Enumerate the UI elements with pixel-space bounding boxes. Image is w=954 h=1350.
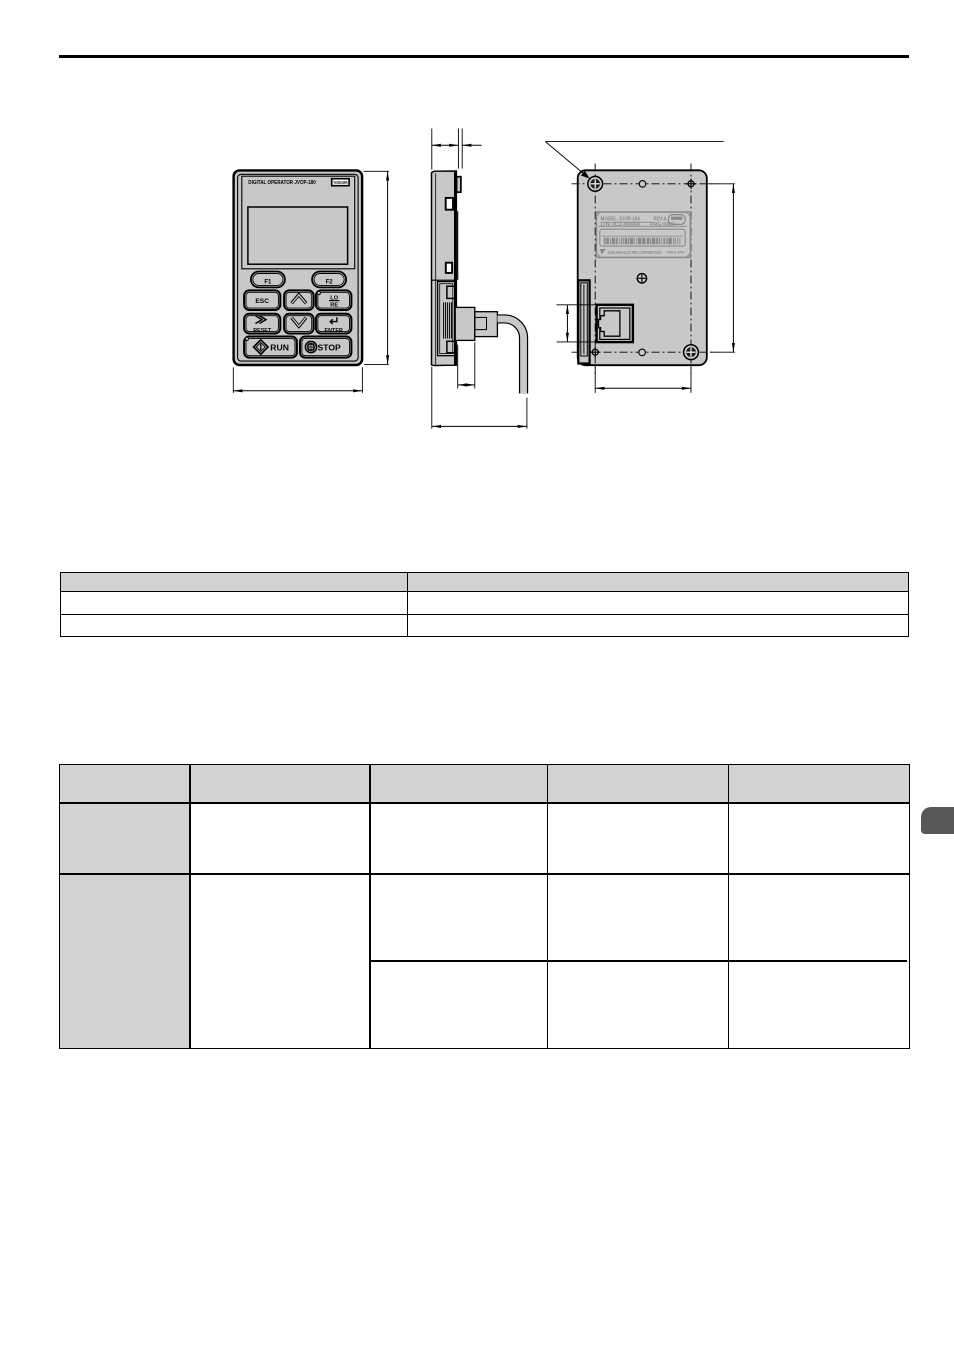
svg-text:DIGITAL OPERATOR JVOP-180: DIGITAL OPERATOR JVOP-180 bbox=[248, 180, 315, 186]
svg-text:ESC: ESC bbox=[255, 298, 269, 305]
svg-text:L/N JC2-00004: L/N JC2-00004 bbox=[601, 222, 641, 228]
svg-text:YASKAWA ELECTRIC CORPORATION: YASKAWA ELECTRIC CORPORATION bbox=[608, 250, 662, 255]
svg-text:RE: RE bbox=[330, 302, 338, 308]
svg-text:RESET: RESET bbox=[253, 328, 272, 334]
svg-text:F1: F1 bbox=[264, 280, 272, 286]
svg-text:ENTER: ENTER bbox=[325, 328, 343, 334]
svg-text:STOP: STOP bbox=[318, 343, 342, 353]
svg-text:F2: F2 bbox=[326, 280, 334, 286]
svg-text:MADE IN JAPAN: MADE IN JAPAN bbox=[667, 251, 685, 255]
svg-text:PRG:0400: PRG:0400 bbox=[650, 222, 675, 228]
svg-text:RUN: RUN bbox=[270, 343, 289, 353]
svg-text:YASKAWA: YASKAWA bbox=[333, 180, 348, 185]
